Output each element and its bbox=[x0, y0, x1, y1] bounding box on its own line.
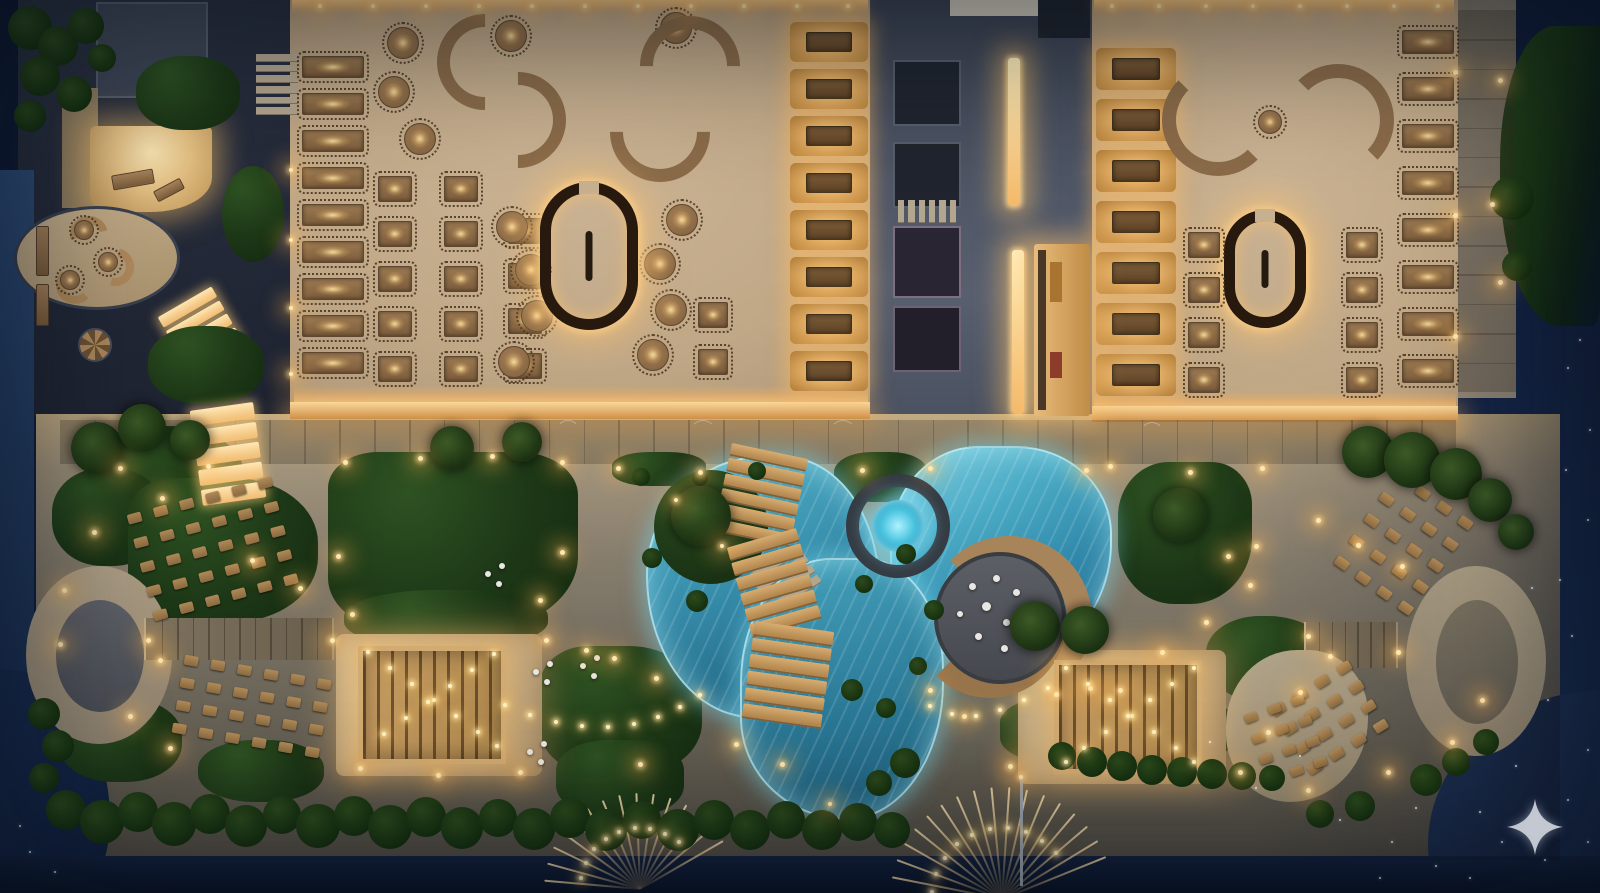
string-light-bulb bbox=[1130, 714, 1134, 718]
ceremony-chair bbox=[166, 553, 182, 566]
string-light-bulb bbox=[528, 713, 532, 717]
ceremony-chair bbox=[1355, 570, 1372, 586]
path-light bbox=[58, 642, 63, 647]
lounge-stool bbox=[975, 633, 982, 640]
ceremony-chair bbox=[229, 709, 245, 721]
star bbox=[1479, 811, 1481, 813]
path-light bbox=[1498, 78, 1503, 83]
string-light-bulb bbox=[648, 827, 652, 831]
string-light-bulb bbox=[998, 708, 1002, 712]
ceremony-chair bbox=[1348, 534, 1365, 550]
path-light bbox=[828, 802, 832, 806]
ceremony-chair bbox=[198, 727, 214, 739]
string-light-bulb bbox=[934, 872, 938, 876]
site-plan-canvas: Top-down 3D night rendering of a waterfr… bbox=[0, 0, 1600, 893]
path-light bbox=[62, 588, 67, 593]
paver-joint-line bbox=[269, 420, 271, 464]
path-light bbox=[1248, 583, 1253, 588]
shrub bbox=[406, 797, 446, 837]
path-light bbox=[616, 466, 621, 471]
dining-booth bbox=[1096, 48, 1176, 90]
string-light-bulb bbox=[1022, 698, 1026, 702]
banquet-table bbox=[1402, 171, 1454, 195]
string-light-bulb bbox=[579, 876, 583, 880]
surface bbox=[1050, 262, 1062, 302]
ceremony-chair bbox=[304, 746, 320, 758]
shrub bbox=[1410, 764, 1442, 796]
path-light bbox=[1226, 554, 1231, 559]
step-tread bbox=[256, 97, 298, 105]
paver-joint-line bbox=[1383, 622, 1385, 668]
tree bbox=[430, 426, 474, 470]
surface bbox=[1050, 352, 1062, 378]
path-light bbox=[1316, 518, 1321, 523]
dining-table bbox=[1346, 322, 1378, 348]
path-light bbox=[1490, 202, 1495, 207]
string-light-bulb bbox=[988, 827, 992, 831]
step-tread bbox=[929, 200, 935, 223]
step-tread bbox=[898, 200, 904, 223]
path-light bbox=[560, 550, 565, 555]
ceremony-chair bbox=[1360, 699, 1377, 715]
path-light bbox=[698, 470, 703, 475]
path-light bbox=[1498, 280, 1503, 285]
path-light bbox=[638, 762, 643, 767]
paver-joint-line bbox=[1458, 333, 1516, 335]
light-strip bbox=[1012, 250, 1024, 414]
lounge-stool bbox=[541, 741, 547, 747]
path-light bbox=[1118, 688, 1123, 693]
path-light bbox=[846, 4, 850, 8]
dining-table bbox=[1188, 232, 1220, 258]
surface bbox=[1038, 0, 1090, 38]
string-light-bulb bbox=[426, 700, 430, 704]
bar-island bbox=[1262, 250, 1269, 288]
round-table bbox=[60, 270, 80, 290]
path-light bbox=[158, 658, 163, 663]
path-light bbox=[1260, 466, 1265, 471]
lounge-stool bbox=[1013, 589, 1020, 596]
path-light bbox=[1453, 334, 1458, 339]
string-light-bulb bbox=[1170, 682, 1174, 686]
shrub bbox=[1228, 762, 1256, 790]
shrub bbox=[190, 794, 230, 834]
lounge-stool bbox=[993, 575, 1000, 582]
path-light bbox=[720, 544, 724, 548]
lawn-patch bbox=[148, 326, 264, 404]
path-light bbox=[1392, 4, 1396, 8]
ceremony-chair bbox=[1258, 752, 1273, 765]
shrub bbox=[28, 698, 60, 730]
string-light-bulb bbox=[492, 652, 496, 656]
lounge-stool bbox=[538, 759, 544, 765]
shrub bbox=[909, 657, 927, 675]
path-light bbox=[1298, 4, 1302, 8]
jacuzzi-water bbox=[872, 500, 924, 552]
string-light-bulb bbox=[1148, 698, 1152, 702]
star bbox=[1565, 469, 1567, 471]
paver-joint-line bbox=[1458, 128, 1516, 130]
banquet-table bbox=[302, 278, 364, 300]
wall-wash-light bbox=[292, 0, 868, 14]
dining-table bbox=[378, 221, 412, 247]
path-light bbox=[780, 762, 785, 767]
path-light bbox=[1019, 775, 1023, 779]
path-light bbox=[1298, 690, 1303, 695]
lounge-stool bbox=[527, 749, 533, 755]
step-tread bbox=[256, 75, 298, 83]
path-light bbox=[1188, 470, 1193, 475]
ceremony-chair bbox=[1305, 735, 1320, 748]
shrub bbox=[20, 56, 60, 96]
shrub bbox=[748, 462, 766, 480]
banquet-table bbox=[302, 56, 364, 78]
ceremony-chair bbox=[218, 539, 234, 552]
banquet-table bbox=[302, 130, 364, 152]
path-light bbox=[1110, 4, 1114, 8]
ceremony-chair bbox=[179, 497, 195, 510]
dining-table bbox=[444, 356, 478, 382]
path-light bbox=[1054, 692, 1059, 697]
lounge-stool bbox=[982, 602, 991, 611]
string-light-bulb bbox=[580, 724, 584, 728]
ceremony-chair bbox=[211, 515, 227, 528]
paver-joint-line bbox=[286, 618, 288, 660]
bar-opening bbox=[579, 181, 599, 194]
dining-table bbox=[698, 302, 728, 328]
string-light-bulb bbox=[955, 842, 959, 846]
surface bbox=[893, 306, 961, 372]
path-light bbox=[477, 4, 481, 8]
lounge-stool bbox=[499, 563, 505, 569]
string-light-bulb bbox=[928, 704, 932, 708]
path-light bbox=[168, 746, 173, 751]
shrub bbox=[1490, 176, 1534, 220]
lawn-patch bbox=[136, 56, 240, 130]
star bbox=[1339, 819, 1341, 821]
star bbox=[1415, 807, 1417, 809]
string-light-bulb bbox=[592, 847, 596, 851]
step-tread bbox=[950, 200, 956, 223]
string-light-bulb bbox=[678, 705, 682, 709]
lounge-stool bbox=[957, 611, 963, 617]
paver-joint-line bbox=[1458, 245, 1516, 247]
ceremony-chair bbox=[172, 723, 188, 735]
ceremony-chair bbox=[225, 732, 241, 744]
lounge-stool bbox=[496, 581, 502, 587]
facade-light-band bbox=[290, 402, 870, 419]
lounge-stool bbox=[547, 661, 553, 667]
path-light bbox=[1356, 543, 1361, 548]
string-light-bulb bbox=[366, 650, 370, 654]
path-light bbox=[1108, 464, 1113, 469]
tree bbox=[502, 422, 542, 462]
round-table bbox=[498, 346, 530, 378]
dining-booth bbox=[790, 116, 868, 156]
shrub bbox=[890, 748, 920, 778]
shrub bbox=[839, 803, 877, 841]
paver-joint-line bbox=[1316, 420, 1318, 464]
door-swing bbox=[690, 420, 716, 446]
dining-booth bbox=[1096, 252, 1176, 294]
dining-table bbox=[378, 266, 412, 292]
path-light bbox=[490, 454, 495, 459]
path-light bbox=[118, 466, 123, 471]
ceremony-chair bbox=[1326, 693, 1343, 709]
step-tread bbox=[256, 86, 298, 94]
surface bbox=[893, 226, 961, 298]
banquet-table bbox=[302, 352, 364, 374]
shrub bbox=[1107, 751, 1137, 781]
shrub bbox=[874, 812, 910, 848]
string-light-bulb bbox=[677, 840, 681, 844]
dining-booth bbox=[790, 69, 868, 109]
surface bbox=[950, 0, 1042, 16]
string-light-bulb bbox=[584, 861, 588, 865]
paver-joint-line bbox=[239, 618, 241, 660]
path-light bbox=[1251, 4, 1255, 8]
ceremony-chair bbox=[140, 560, 156, 573]
ceremony-chair bbox=[1289, 765, 1304, 778]
path-light bbox=[538, 598, 543, 603]
path-light bbox=[146, 638, 151, 643]
dining-table bbox=[1346, 232, 1378, 258]
shrub bbox=[694, 800, 734, 840]
path-light bbox=[962, 714, 967, 719]
dining-table bbox=[1188, 322, 1220, 348]
step-tread bbox=[256, 65, 298, 73]
terrace-ellipse bbox=[1436, 600, 1518, 724]
path-light bbox=[654, 676, 659, 681]
paver-joint-line bbox=[1370, 622, 1372, 668]
ceremony-chair bbox=[231, 587, 247, 600]
ceremony-chair bbox=[159, 529, 175, 542]
path-light bbox=[674, 498, 678, 502]
path-light bbox=[1238, 770, 1243, 775]
wood-furniture bbox=[36, 226, 49, 276]
round-table bbox=[644, 248, 676, 280]
dining-booth bbox=[790, 22, 868, 62]
string-light-bulb bbox=[1040, 839, 1044, 843]
step-tread bbox=[908, 200, 914, 223]
path-light bbox=[1400, 564, 1405, 569]
string-light-bulb bbox=[1126, 714, 1130, 718]
paver-joint-line bbox=[1212, 420, 1214, 464]
ceremony-chair bbox=[1378, 491, 1395, 507]
star bbox=[1299, 755, 1301, 757]
ceremony-chair bbox=[282, 719, 298, 731]
dining-table bbox=[444, 266, 478, 292]
dining-table bbox=[698, 349, 728, 375]
ceremony-chair bbox=[1421, 521, 1438, 537]
banquet-table bbox=[1402, 30, 1454, 54]
dining-table bbox=[378, 356, 412, 382]
lounge-stool bbox=[594, 655, 600, 661]
lounge-stool bbox=[544, 679, 550, 685]
path-light bbox=[612, 656, 617, 661]
path-light bbox=[318, 4, 322, 8]
shrub bbox=[1306, 800, 1334, 828]
ceremony-chair bbox=[1282, 744, 1297, 757]
path-light bbox=[336, 554, 341, 559]
path-light bbox=[1088, 686, 1093, 691]
star bbox=[1587, 519, 1589, 521]
surface bbox=[1038, 250, 1046, 410]
string-light-bulb bbox=[663, 832, 667, 836]
star bbox=[1587, 749, 1589, 751]
lounge-stool bbox=[1003, 619, 1010, 626]
paver-joint-line bbox=[1247, 420, 1249, 464]
path-light bbox=[289, 306, 293, 310]
path-light bbox=[560, 460, 565, 465]
dining-booth bbox=[790, 304, 868, 344]
star bbox=[1515, 765, 1517, 767]
string-light-bulb bbox=[1104, 730, 1108, 734]
star bbox=[1255, 787, 1257, 789]
star bbox=[1579, 339, 1581, 341]
string-light-bulb bbox=[1006, 826, 1010, 830]
lounge-stool bbox=[485, 571, 491, 577]
star bbox=[1469, 877, 1471, 879]
path-light bbox=[1453, 70, 1458, 75]
slatted-gate-fan bbox=[890, 786, 1114, 893]
shrub bbox=[441, 807, 483, 849]
banquet-table bbox=[1402, 218, 1454, 242]
path-light bbox=[1084, 468, 1089, 473]
ceremony-chair bbox=[263, 501, 279, 514]
string-light-bulb bbox=[1064, 666, 1068, 670]
step-tread bbox=[939, 200, 945, 223]
lounge-stool bbox=[580, 663, 586, 669]
steps bbox=[256, 54, 298, 114]
paver-joint-line bbox=[208, 618, 210, 660]
banquet-table bbox=[302, 315, 364, 337]
shrub bbox=[896, 544, 916, 564]
shrub bbox=[513, 808, 555, 850]
paver-joint-line bbox=[1107, 420, 1109, 464]
ceremony-chair bbox=[133, 536, 149, 549]
string-light-bulb bbox=[617, 830, 621, 834]
dining-booth bbox=[1096, 201, 1176, 243]
path-light bbox=[742, 4, 746, 8]
bar-opening bbox=[1255, 209, 1275, 222]
shrub bbox=[632, 468, 650, 486]
path-light bbox=[160, 496, 165, 501]
steps bbox=[898, 200, 956, 222]
star bbox=[1544, 859, 1546, 861]
path-light bbox=[371, 4, 375, 8]
shrub bbox=[68, 8, 104, 44]
paver-joint-line bbox=[1458, 39, 1516, 41]
path-light bbox=[424, 4, 428, 8]
ceremony-chair bbox=[251, 737, 267, 749]
string-light-bulb bbox=[410, 682, 414, 686]
string-light-bulb bbox=[495, 744, 499, 748]
banquet-table bbox=[1402, 312, 1454, 336]
surface bbox=[893, 60, 961, 126]
ceremony-chair bbox=[259, 691, 275, 703]
star bbox=[1567, 799, 1569, 801]
dining-booth bbox=[790, 257, 868, 297]
star bbox=[1531, 587, 1533, 589]
dining-booth bbox=[1096, 150, 1176, 192]
surface bbox=[1020, 776, 1023, 886]
ceremony-chair bbox=[233, 687, 249, 699]
path-light bbox=[518, 770, 523, 775]
ceremony-chair bbox=[263, 669, 279, 681]
ceremony-chair bbox=[127, 511, 143, 524]
path-light bbox=[1306, 634, 1311, 639]
ceremony-chair bbox=[179, 601, 195, 614]
path-light bbox=[583, 4, 587, 8]
ceremony-chair bbox=[1363, 513, 1380, 529]
shrub bbox=[1197, 759, 1227, 789]
star bbox=[1587, 841, 1589, 843]
dining-booth bbox=[1096, 354, 1176, 396]
tree bbox=[170, 420, 210, 460]
string-light-bulb bbox=[698, 693, 702, 697]
string-light-bulb bbox=[1152, 730, 1156, 734]
dining-table bbox=[444, 176, 478, 202]
ceremony-chair bbox=[172, 577, 188, 590]
round-table bbox=[655, 294, 687, 326]
dining-table bbox=[1346, 277, 1378, 303]
ceremony-chair bbox=[278, 741, 294, 753]
ceremony-chair bbox=[206, 682, 222, 694]
shrub bbox=[479, 799, 517, 837]
round-table bbox=[404, 123, 436, 155]
paver-joint-line bbox=[1072, 420, 1074, 464]
path-light bbox=[1266, 730, 1271, 735]
ceremony-chair bbox=[202, 705, 218, 717]
banquet-table bbox=[1402, 124, 1454, 148]
dining-table bbox=[378, 176, 412, 202]
ceremony-chair bbox=[231, 484, 247, 497]
string-light-bulb bbox=[382, 732, 386, 736]
lounge-stool bbox=[533, 669, 539, 675]
tree bbox=[1468, 478, 1512, 522]
round-table bbox=[378, 76, 410, 108]
path-light bbox=[1450, 740, 1455, 745]
string-light-bulb bbox=[974, 714, 978, 718]
shrub bbox=[80, 800, 124, 844]
lounge-stool bbox=[969, 583, 976, 590]
string-light-bulb bbox=[633, 826, 637, 830]
path-light bbox=[128, 714, 133, 719]
ceremony-chair bbox=[175, 700, 191, 712]
star bbox=[1391, 841, 1393, 843]
ceremony-chair bbox=[316, 678, 332, 690]
path-light bbox=[860, 468, 865, 473]
string-light-bulb bbox=[656, 715, 660, 719]
ceremony-chair bbox=[1313, 756, 1328, 769]
dining-table bbox=[1188, 277, 1220, 303]
ceremony-chair bbox=[146, 584, 162, 597]
wall-wash-light bbox=[1094, 0, 1454, 14]
dining-booth bbox=[790, 163, 868, 203]
star bbox=[1435, 865, 1437, 867]
ceremony-chair bbox=[276, 549, 292, 562]
string-light-bulb bbox=[404, 716, 408, 720]
string-light-bulb bbox=[970, 833, 974, 837]
string-light-bulb bbox=[448, 684, 452, 688]
ceremony-chair bbox=[1397, 600, 1414, 616]
path-light bbox=[350, 612, 355, 617]
ceremony-chair bbox=[237, 664, 253, 676]
ceremony-chair bbox=[290, 673, 306, 685]
shrub bbox=[56, 76, 92, 112]
round-table bbox=[637, 339, 669, 371]
